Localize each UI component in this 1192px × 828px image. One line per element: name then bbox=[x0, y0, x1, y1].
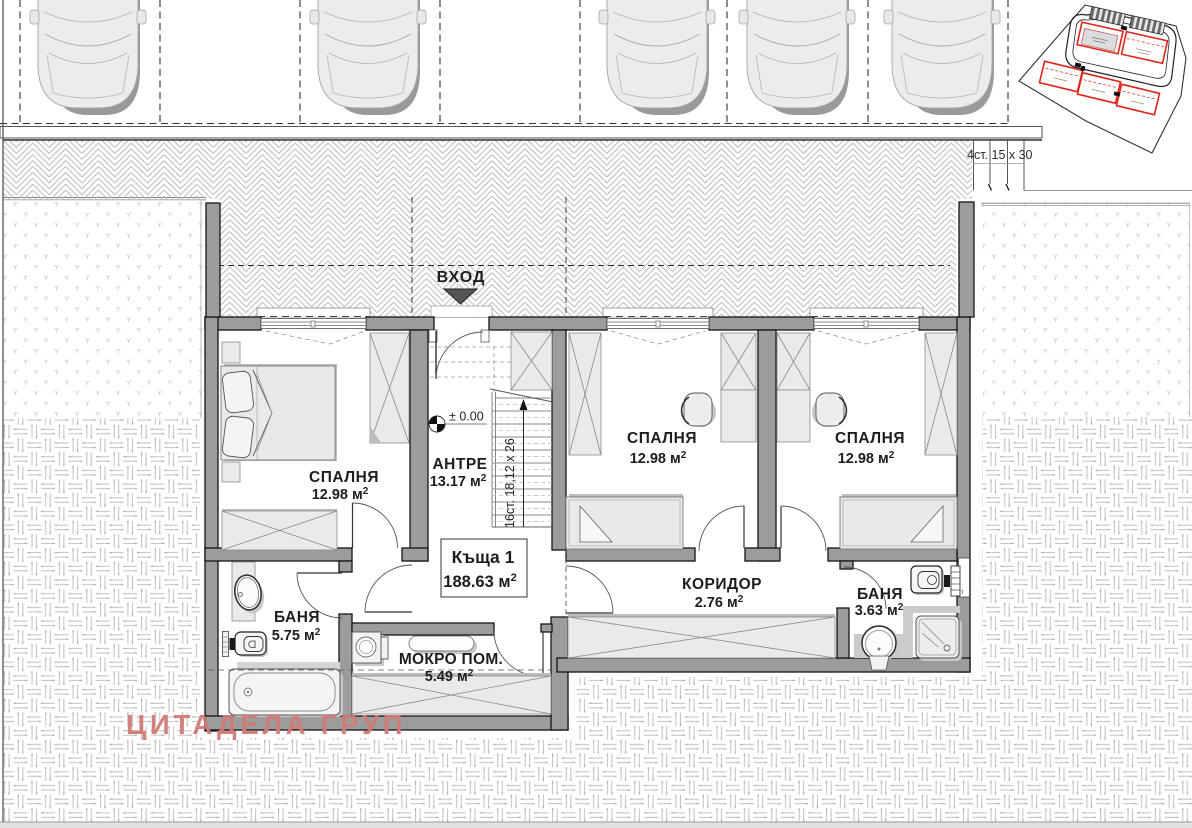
svg-text:МОКРО ПОМ.: МОКРО ПОМ. bbox=[399, 651, 503, 668]
svg-text:12.98 м2: 12.98 м2 bbox=[630, 450, 687, 467]
svg-text:12.98 м2: 12.98 м2 bbox=[312, 486, 369, 503]
svg-text:188.63 м2: 188.63 м2 bbox=[443, 572, 516, 591]
svg-text:13.17 м2: 13.17 м2 bbox=[430, 473, 487, 490]
svg-text:КОРИДОР: КОРИДОР bbox=[682, 576, 762, 593]
svg-text:СПАЛНЯ: СПАЛНЯ bbox=[309, 469, 379, 486]
svg-text:БАНЯ: БАНЯ bbox=[857, 586, 903, 603]
svg-text:т: т bbox=[961, 590, 964, 596]
svg-text:СПАЛНЯ: СПАЛНЯ bbox=[835, 430, 905, 447]
svg-text:5.49 м2: 5.49 м2 bbox=[425, 668, 474, 685]
svg-text:4ст. 15 x 30: 4ст. 15 x 30 bbox=[967, 148, 1033, 162]
svg-text:СПАЛНЯ: СПАЛНЯ bbox=[627, 430, 697, 447]
svg-text:АНТРЕ: АНТРЕ bbox=[432, 456, 487, 473]
svg-text:5.75 м2: 5.75 м2 bbox=[272, 627, 321, 644]
svg-text:БАНЯ: БАНЯ bbox=[274, 609, 320, 626]
svg-text:ЦИТАДЕЛА ГРУП: ЦИТАДЕЛА ГРУП bbox=[126, 709, 406, 740]
svg-text:12.98 м2: 12.98 м2 bbox=[838, 450, 895, 467]
svg-text:2.76 м2: 2.76 м2 bbox=[695, 594, 744, 611]
svg-text:16ст. 18,12 х 26: 16ст. 18,12 х 26 bbox=[503, 438, 517, 528]
svg-text:Къща 1: Къща 1 bbox=[452, 547, 515, 567]
svg-text:ВХОД: ВХОД bbox=[437, 269, 486, 286]
svg-text:± 0.00: ± 0.00 bbox=[449, 410, 484, 424]
svg-text:3.63 м2: 3.63 м2 bbox=[855, 602, 904, 619]
